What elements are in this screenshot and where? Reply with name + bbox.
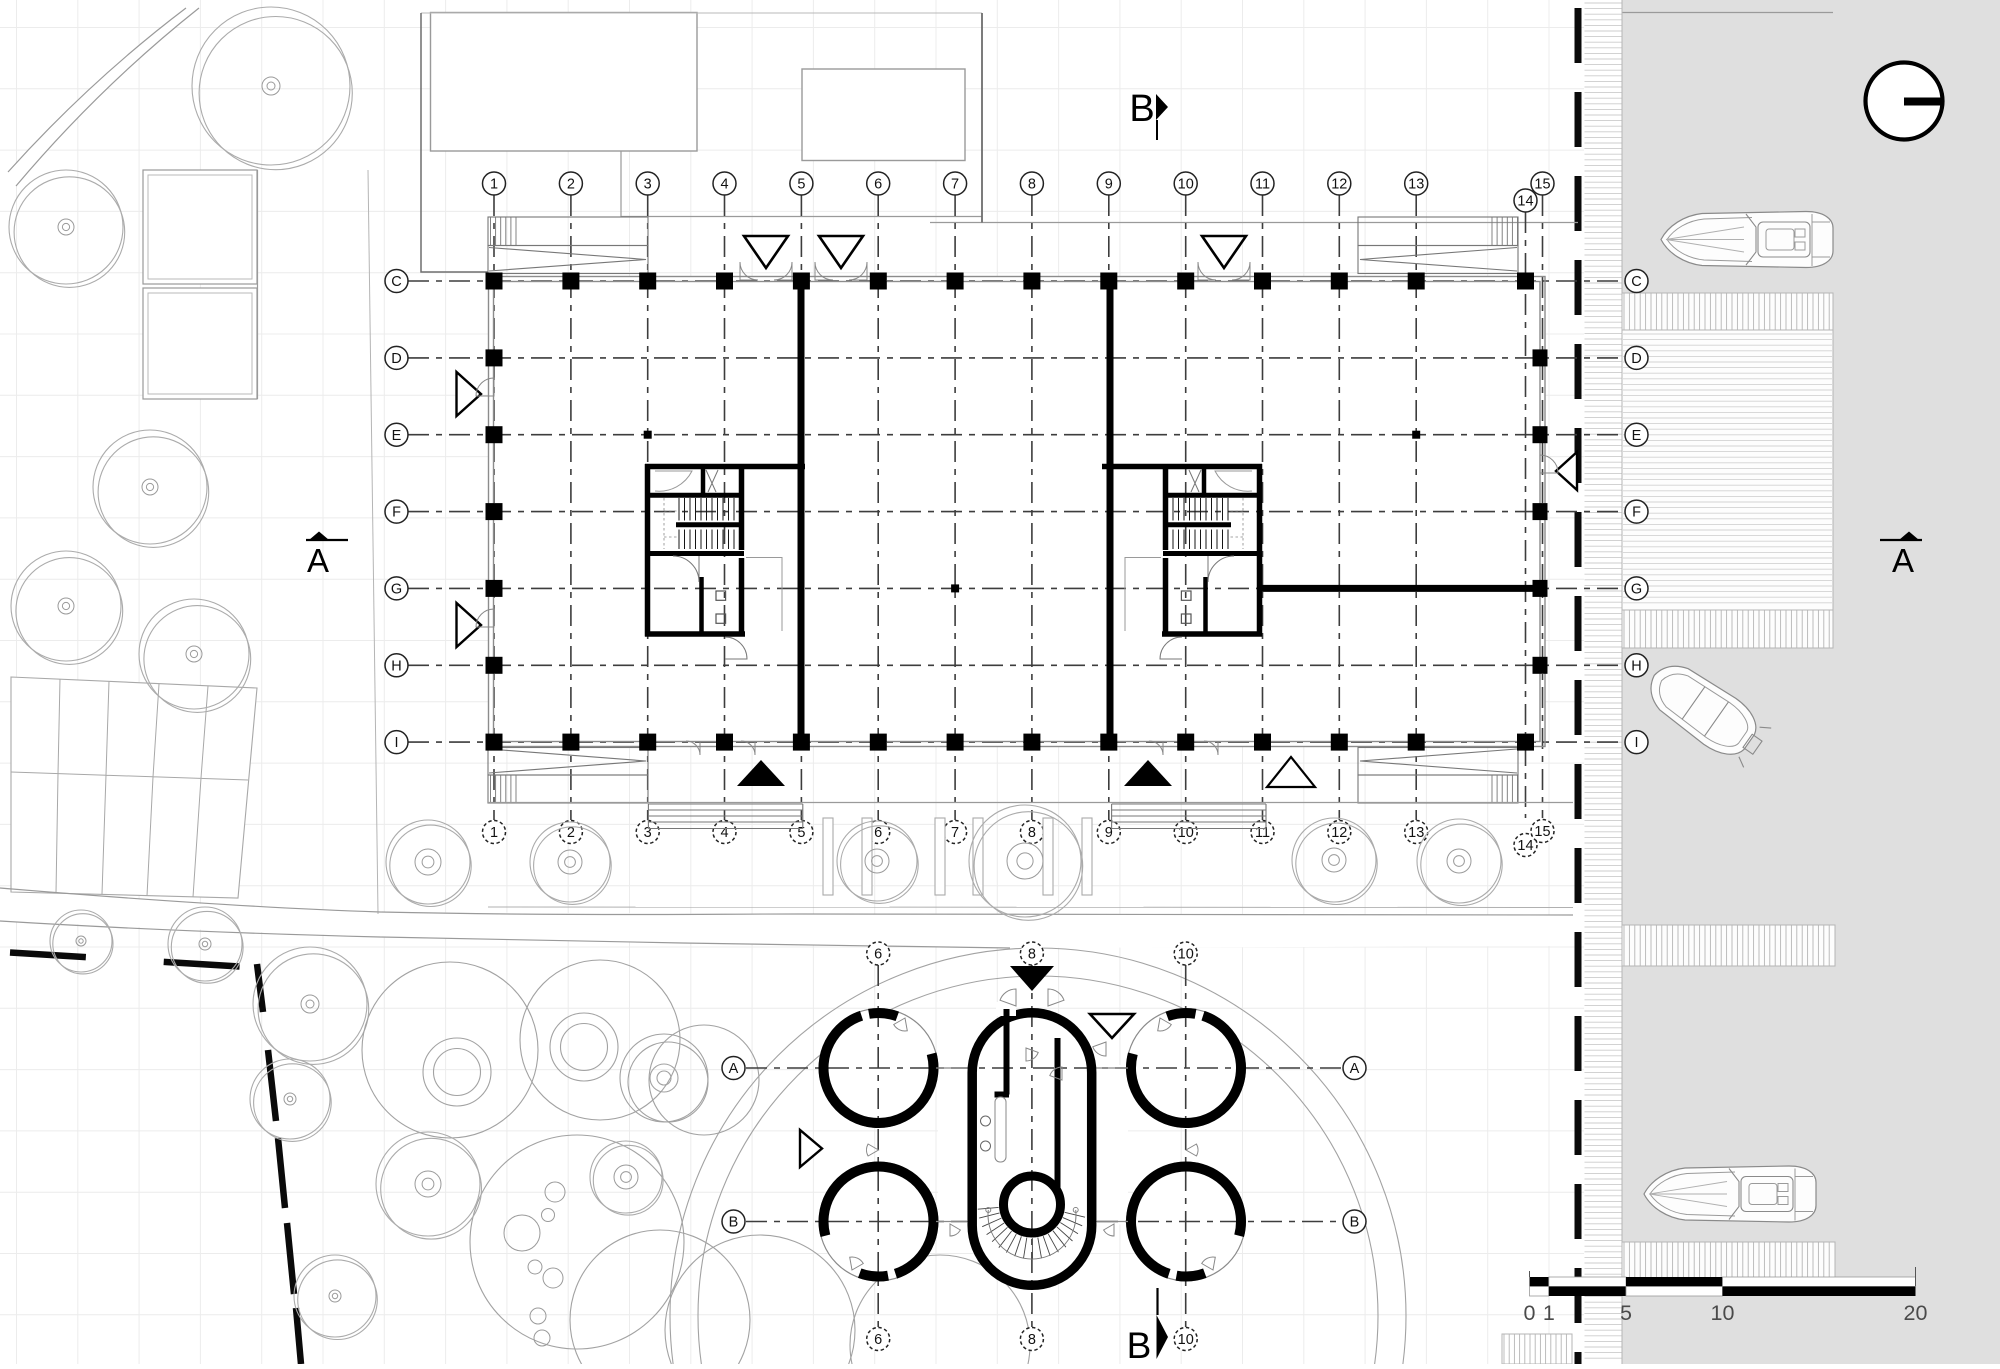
svg-text:A: A: [1350, 1061, 1360, 1077]
svg-text:E: E: [1632, 428, 1642, 444]
svg-text:6: 6: [874, 947, 882, 963]
svg-text:8: 8: [1028, 177, 1036, 193]
svg-text:15: 15: [1534, 177, 1550, 193]
svg-text:H: H: [1631, 658, 1641, 674]
svg-text:11: 11: [1255, 177, 1270, 193]
svg-text:13: 13: [1408, 177, 1424, 193]
svg-text:B: B: [1129, 88, 1154, 130]
svg-text:6: 6: [874, 177, 882, 193]
svg-text:I: I: [1634, 735, 1638, 751]
svg-text:10: 10: [1178, 1332, 1194, 1348]
svg-text:5: 5: [1620, 1301, 1632, 1325]
svg-text:10: 10: [1178, 825, 1194, 841]
svg-text:14: 14: [1517, 194, 1533, 210]
svg-text:H: H: [391, 658, 401, 674]
svg-text:F: F: [1632, 505, 1641, 521]
svg-text:1: 1: [1543, 1301, 1555, 1325]
svg-text:15: 15: [1534, 824, 1550, 840]
svg-text:1: 1: [490, 177, 498, 193]
svg-text:B: B: [1350, 1215, 1360, 1231]
svg-text:2: 2: [567, 177, 575, 193]
svg-text:10: 10: [1178, 947, 1194, 963]
svg-text:A: A: [307, 542, 329, 579]
svg-text:F: F: [392, 505, 401, 521]
svg-text:11: 11: [1255, 825, 1270, 841]
svg-text:4: 4: [720, 177, 728, 193]
svg-text:20: 20: [1904, 1301, 1928, 1325]
svg-text:D: D: [1631, 351, 1641, 367]
svg-text:4: 4: [720, 825, 728, 841]
svg-text:C: C: [1631, 274, 1641, 290]
svg-text:A: A: [729, 1061, 739, 1077]
svg-text:8: 8: [1028, 825, 1036, 841]
svg-text:C: C: [391, 274, 401, 290]
svg-text:7: 7: [951, 177, 959, 193]
svg-text:5: 5: [797, 177, 805, 193]
svg-text:3: 3: [644, 825, 652, 841]
svg-text:1: 1: [490, 825, 498, 841]
svg-text:D: D: [391, 351, 401, 367]
svg-text:10: 10: [1711, 1301, 1735, 1325]
svg-text:6: 6: [874, 825, 882, 841]
svg-text:G: G: [1631, 582, 1642, 598]
svg-text:13: 13: [1408, 825, 1424, 841]
svg-text:0: 0: [1524, 1301, 1536, 1325]
svg-text:B: B: [729, 1215, 739, 1231]
svg-text:9: 9: [1105, 177, 1113, 193]
svg-text:3: 3: [644, 177, 652, 193]
svg-text:8: 8: [1028, 1332, 1036, 1348]
svg-text:8: 8: [1028, 947, 1036, 963]
svg-text:12: 12: [1331, 825, 1347, 841]
svg-text:A: A: [1892, 542, 1914, 579]
svg-text:5: 5: [797, 825, 805, 841]
svg-text:E: E: [392, 428, 402, 444]
svg-text:7: 7: [951, 825, 959, 841]
svg-text:10: 10: [1178, 177, 1194, 193]
svg-text:12: 12: [1331, 177, 1347, 193]
svg-text:B: B: [1127, 1325, 1152, 1364]
svg-text:I: I: [394, 735, 398, 751]
svg-text:G: G: [391, 582, 402, 598]
svg-text:6: 6: [874, 1332, 882, 1348]
svg-text:14: 14: [1517, 838, 1533, 854]
